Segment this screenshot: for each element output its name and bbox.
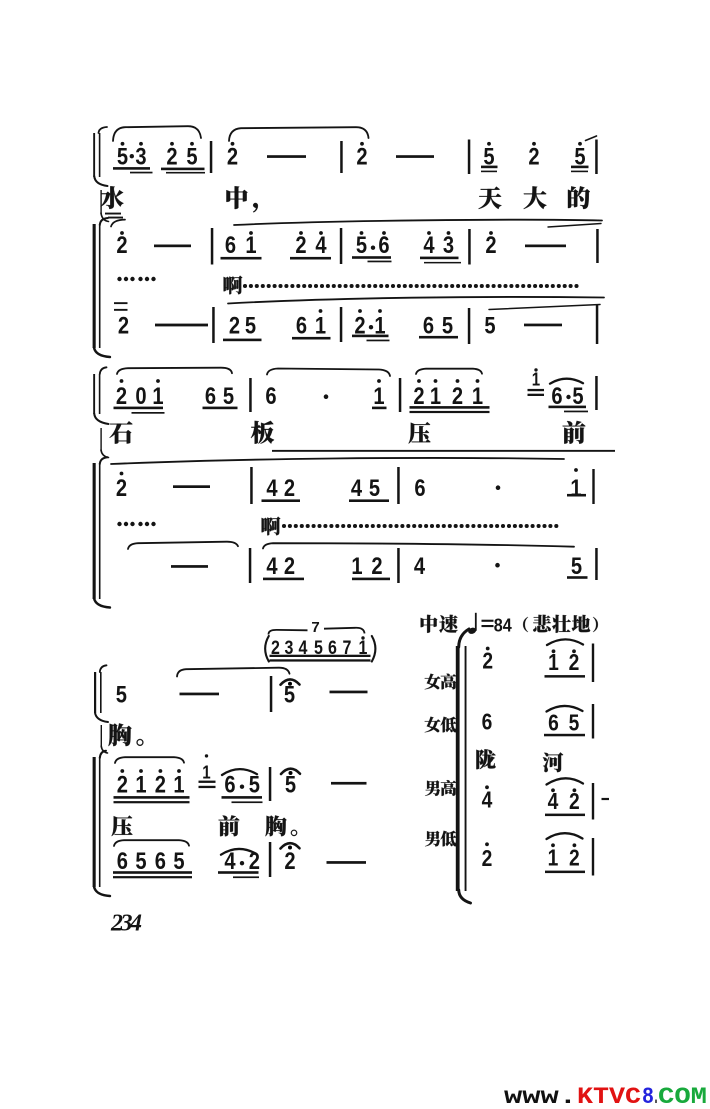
svg-text:5: 5 xyxy=(117,144,128,171)
svg-text:4: 4 xyxy=(423,232,435,259)
svg-text:2: 2 xyxy=(482,845,493,871)
svg-text:2: 2 xyxy=(166,144,177,171)
svg-text:1: 1 xyxy=(472,383,483,410)
svg-text:5: 5 xyxy=(249,772,260,799)
svg-text:2: 2 xyxy=(118,313,129,340)
svg-text:3: 3 xyxy=(443,232,454,259)
svg-text:5: 5 xyxy=(484,313,495,340)
svg-text:2: 2 xyxy=(284,848,295,875)
svg-text:2: 2 xyxy=(485,232,496,259)
svg-text:1: 1 xyxy=(548,649,559,675)
svg-text:234: 234 xyxy=(110,911,142,937)
svg-text:4: 4 xyxy=(266,475,278,502)
svg-text:5: 5 xyxy=(173,848,184,875)
svg-text:5: 5 xyxy=(569,710,580,736)
svg-text:5: 5 xyxy=(186,144,197,171)
svg-text:4: 4 xyxy=(266,553,278,580)
svg-text:2: 2 xyxy=(569,788,580,814)
svg-text:5: 5 xyxy=(369,475,380,502)
svg-text:6: 6 xyxy=(225,232,236,259)
svg-text:5: 5 xyxy=(116,682,127,709)
svg-text:4: 4 xyxy=(315,232,327,259)
svg-text:2: 2 xyxy=(371,553,382,580)
svg-text:2: 2 xyxy=(569,845,580,871)
svg-text:1: 1 xyxy=(430,383,441,410)
svg-text:6: 6 xyxy=(548,710,559,736)
svg-text:5: 5 xyxy=(284,682,295,709)
svg-text:6: 6 xyxy=(117,848,128,875)
svg-text:6: 6 xyxy=(155,848,166,875)
svg-text:1: 1 xyxy=(373,383,384,410)
svg-text:5: 5 xyxy=(135,848,146,875)
svg-text:6: 6 xyxy=(265,383,276,410)
svg-text:1: 1 xyxy=(152,383,163,410)
svg-text:0: 0 xyxy=(135,383,146,410)
svg-text:1: 1 xyxy=(245,232,256,259)
svg-text:6: 6 xyxy=(205,383,216,410)
svg-text:5: 5 xyxy=(245,313,256,340)
svg-text:2: 2 xyxy=(229,313,240,340)
svg-text:5: 5 xyxy=(356,232,367,259)
svg-text:2: 2 xyxy=(528,144,539,171)
svg-text:2: 2 xyxy=(284,475,295,502)
svg-text:1: 1 xyxy=(570,475,581,502)
svg-text:4: 4 xyxy=(548,788,559,814)
svg-text:2: 2 xyxy=(452,383,463,410)
svg-text:2: 2 xyxy=(356,144,367,171)
svg-text:6: 6 xyxy=(378,232,389,259)
svg-text:1: 1 xyxy=(135,772,146,799)
svg-text:www.: www. xyxy=(504,1084,577,1109)
svg-text:2: 2 xyxy=(249,848,260,875)
svg-text:KTVC: KTVC xyxy=(577,1084,641,1109)
svg-text:84: 84 xyxy=(494,616,512,636)
svg-text:1: 1 xyxy=(548,845,559,871)
svg-text:2: 2 xyxy=(482,648,493,674)
svg-text:6: 6 xyxy=(224,772,235,799)
svg-text:2: 2 xyxy=(413,383,424,410)
svg-text:1: 1 xyxy=(202,763,210,783)
svg-text:6: 6 xyxy=(414,475,425,502)
svg-text:4: 4 xyxy=(482,787,493,813)
svg-text:2: 2 xyxy=(227,144,238,171)
svg-text:2: 2 xyxy=(116,383,127,410)
svg-text:5: 5 xyxy=(571,553,582,580)
svg-text:3: 3 xyxy=(135,144,146,171)
svg-text:5: 5 xyxy=(285,772,296,799)
svg-text:6: 6 xyxy=(296,313,307,340)
svg-text:1: 1 xyxy=(173,772,184,799)
svg-text:1: 1 xyxy=(532,370,540,390)
svg-text:6: 6 xyxy=(423,313,434,340)
svg-text:2: 2 xyxy=(116,232,127,259)
svg-text:2: 2 xyxy=(155,772,166,799)
svg-text:2: 2 xyxy=(117,772,128,799)
svg-text:1: 1 xyxy=(351,553,362,580)
svg-text:4: 4 xyxy=(351,475,363,502)
svg-text:4: 4 xyxy=(224,848,236,875)
svg-text:5: 5 xyxy=(442,313,453,340)
svg-text:1: 1 xyxy=(315,313,326,340)
svg-text:5: 5 xyxy=(223,383,234,410)
svg-text:2: 2 xyxy=(116,475,127,502)
svg-text:2: 2 xyxy=(295,232,306,259)
svg-text:7: 7 xyxy=(311,619,319,636)
svg-text:6: 6 xyxy=(482,709,493,735)
svg-text:COM: COM xyxy=(658,1084,707,1109)
svg-text:2: 2 xyxy=(284,553,295,580)
svg-text:2: 2 xyxy=(569,649,580,675)
svg-text:4: 4 xyxy=(414,553,426,580)
